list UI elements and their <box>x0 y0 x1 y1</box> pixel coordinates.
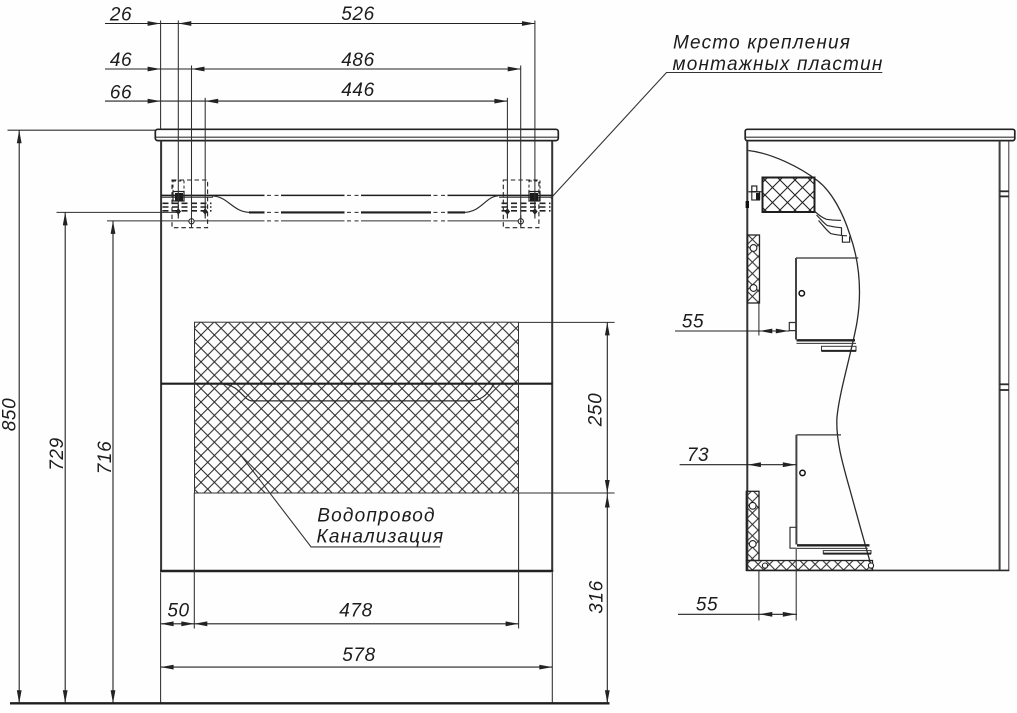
svg-text:478: 478 <box>339 601 373 622</box>
svg-text:250: 250 <box>586 393 607 428</box>
svg-text:монтажных пластин: монтажных пластин <box>673 54 884 75</box>
svg-text:50: 50 <box>167 601 189 622</box>
svg-text:729: 729 <box>47 437 68 471</box>
svg-text:73: 73 <box>687 445 709 466</box>
svg-text:446: 446 <box>341 80 375 101</box>
svg-text:716: 716 <box>95 441 116 475</box>
svg-text:Водопровод: Водопровод <box>317 505 435 526</box>
svg-text:66: 66 <box>110 82 132 103</box>
svg-text:55: 55 <box>682 312 704 333</box>
svg-text:55: 55 <box>696 595 718 616</box>
svg-text:526: 526 <box>341 4 375 25</box>
svg-text:46: 46 <box>110 50 132 71</box>
svg-text:Канализация: Канализация <box>317 527 445 548</box>
svg-text:486: 486 <box>341 50 375 71</box>
svg-text:26: 26 <box>109 5 132 26</box>
svg-text:316: 316 <box>587 580 608 614</box>
svg-text:850: 850 <box>0 398 21 432</box>
svg-text:578: 578 <box>342 645 376 666</box>
svg-text:Место крепления: Место крепления <box>673 33 851 54</box>
